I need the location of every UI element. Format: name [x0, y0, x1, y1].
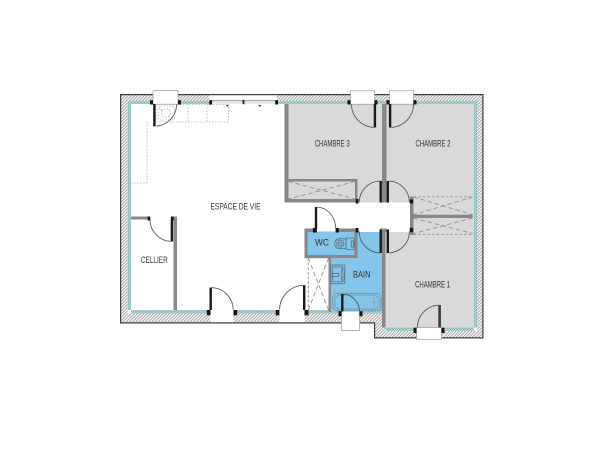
svg-text:CHAMBRE 1: CHAMBRE 1: [415, 280, 450, 290]
svg-text:BAIN: BAIN: [353, 270, 371, 280]
svg-text:CELLIER: CELLIER: [141, 255, 168, 265]
svg-text:CHAMBRE 3: CHAMBRE 3: [315, 139, 350, 149]
svg-text:CHAMBRE 2: CHAMBRE 2: [416, 139, 451, 149]
svg-text:WC: WC: [315, 238, 329, 248]
svg-text:ESPACE DE VIE: ESPACE DE VIE: [211, 202, 261, 212]
